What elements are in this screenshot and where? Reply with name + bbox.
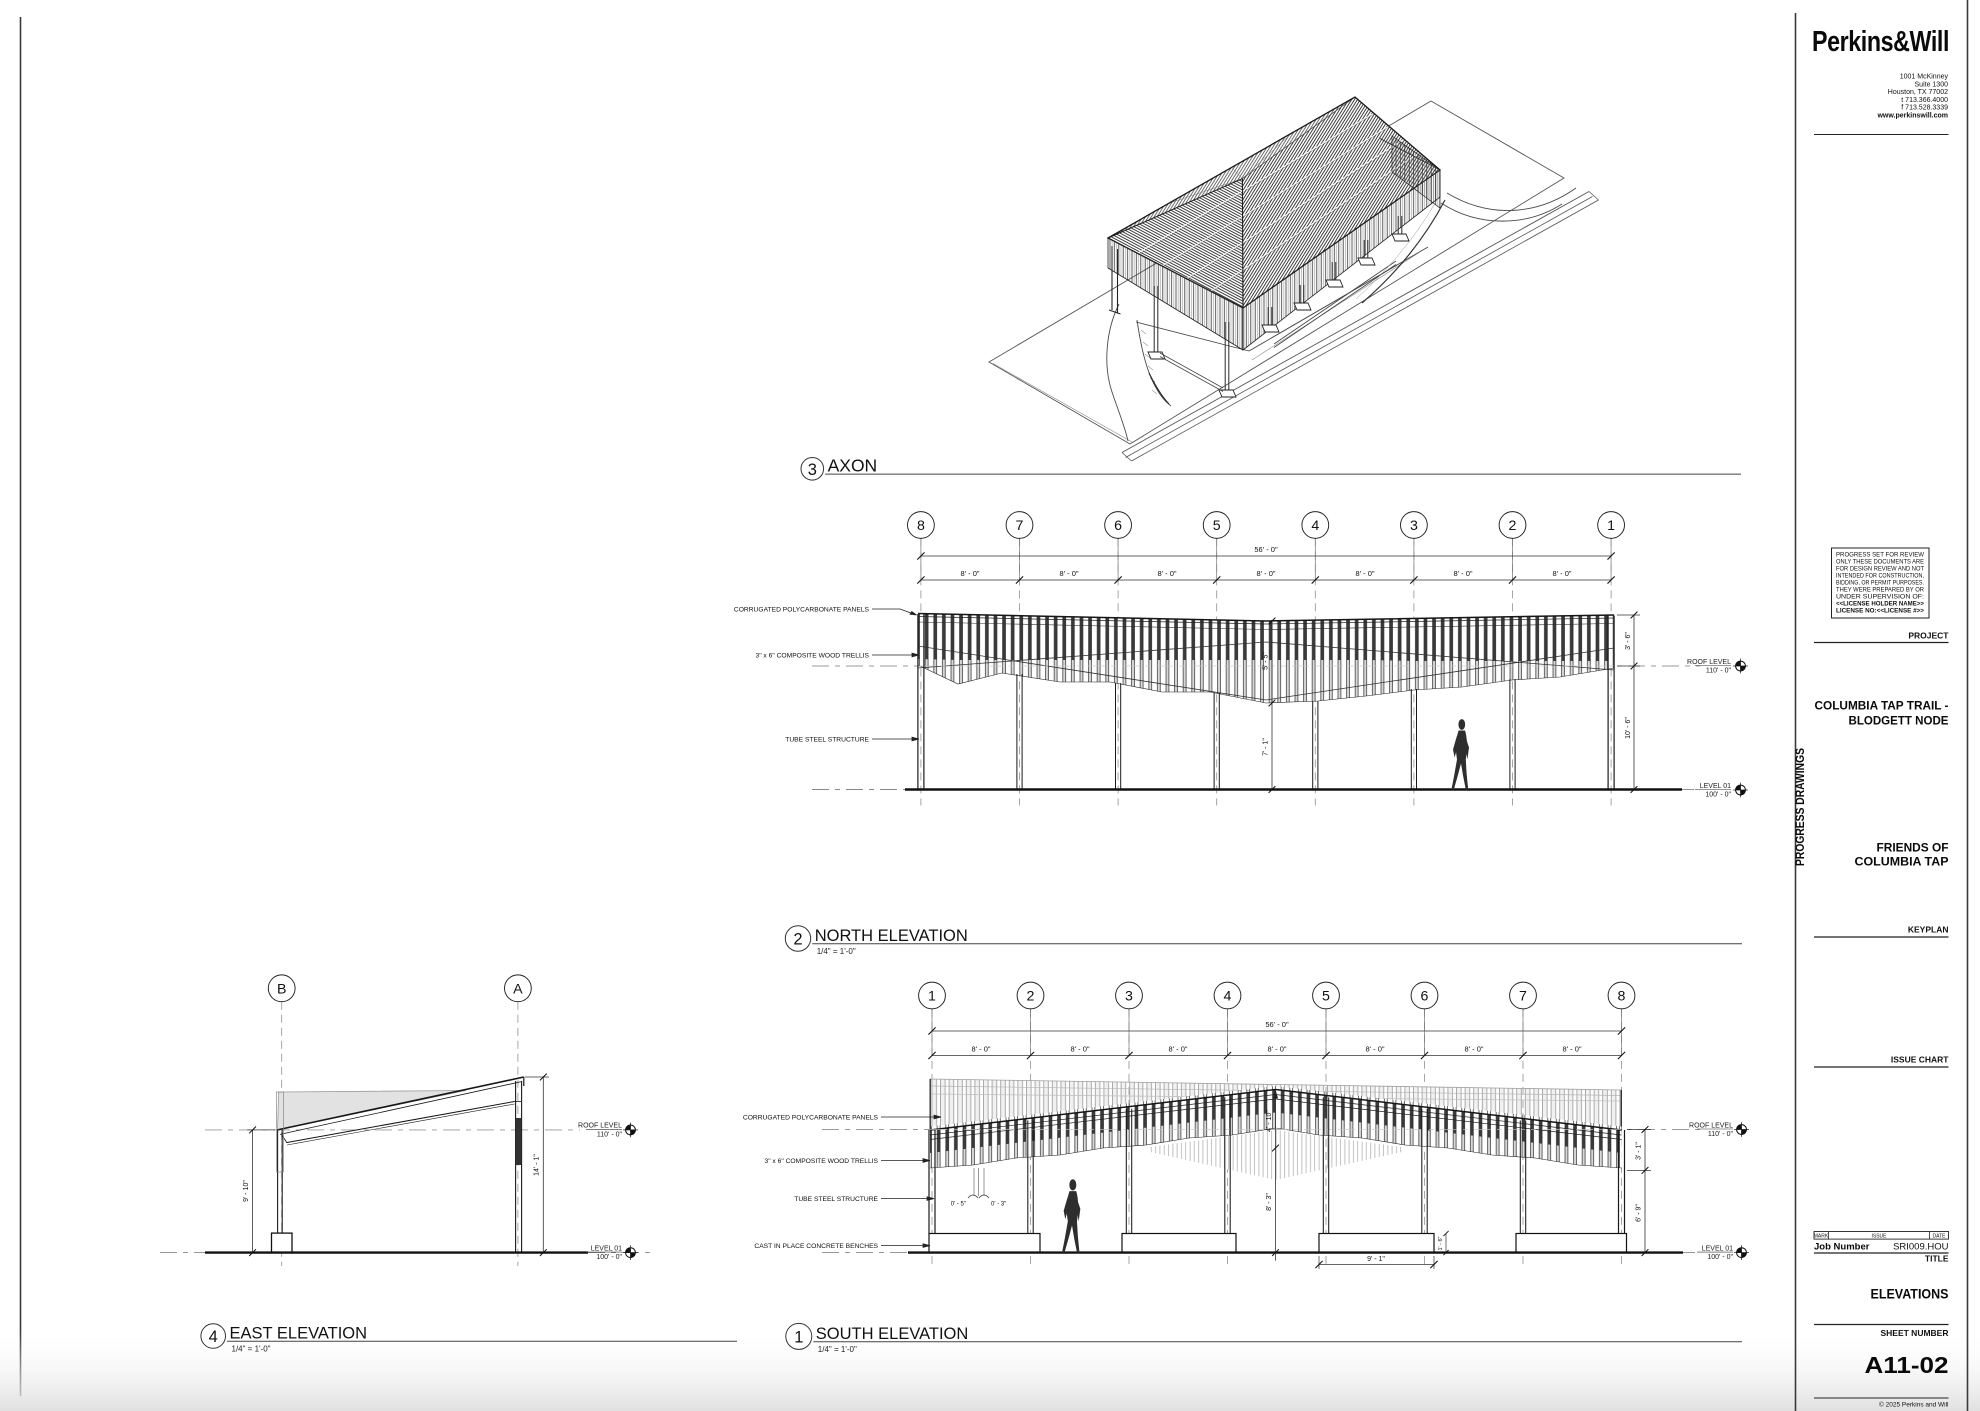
svg-text:www.perkinswill.com: www.perkinswill.com bbox=[1876, 113, 1948, 120]
svg-text:COLUMBIA TAP: COLUMBIA TAP bbox=[1855, 857, 1949, 869]
svg-text:8' - 0": 8' - 0" bbox=[1059, 569, 1078, 578]
svg-text:8' - 0": 8' - 0" bbox=[1453, 569, 1472, 578]
svg-text:Job Number: Job Number bbox=[1814, 1242, 1870, 1253]
svg-text:8' - 0": 8' - 0" bbox=[1552, 569, 1571, 578]
svg-text:7: 7 bbox=[1016, 518, 1024, 534]
svg-text:7' - 1": 7' - 1" bbox=[1263, 738, 1270, 756]
svg-text:KEYPLAN: KEYPLAN bbox=[1908, 925, 1949, 935]
svg-text:ISSUE: ISSUE bbox=[1871, 1233, 1887, 1239]
svg-text:10' - 6": 10' - 6" bbox=[1625, 717, 1632, 739]
svg-text:1/4" = 1'-0": 1/4" = 1'-0" bbox=[818, 1345, 857, 1354]
svg-text:LEVEL 01: LEVEL 01 bbox=[591, 1245, 622, 1252]
svg-text:2: 2 bbox=[1509, 518, 1517, 534]
svg-text:FOR DESIGN REVIEW AND NOT: FOR DESIGN REVIEW AND NOT bbox=[1836, 566, 1924, 573]
svg-text:6: 6 bbox=[1114, 518, 1122, 534]
svg-text:TUBE STEEL STRUCTURE: TUBE STEEL STRUCTURE bbox=[785, 737, 869, 744]
svg-text:EAST ELEVATION: EAST ELEVATION bbox=[230, 1325, 368, 1343]
svg-text:5: 5 bbox=[1213, 518, 1221, 534]
svg-text:A11-02: A11-02 bbox=[1865, 1352, 1949, 1378]
svg-text:© 2025 Perkins and Will: © 2025 Perkins and Will bbox=[1879, 1401, 1949, 1409]
svg-text:COLUMBIA TAP TRAIL -: COLUMBIA TAP TRAIL - bbox=[1815, 701, 1949, 713]
svg-text:100' - 0": 100' - 0" bbox=[1705, 792, 1731, 799]
svg-text:INTENDED FOR CONSTRUCTION,: INTENDED FOR CONSTRUCTION, bbox=[1836, 573, 1924, 580]
svg-text:1001 McKinney: 1001 McKinney bbox=[1900, 74, 1949, 81]
svg-text:110' - 0": 110' - 0" bbox=[1706, 668, 1732, 675]
svg-text:2: 2 bbox=[1027, 989, 1035, 1005]
svg-text:ROOF LEVEL: ROOF LEVEL bbox=[1687, 659, 1731, 666]
svg-text:110' - 0": 110' - 0" bbox=[1708, 1131, 1734, 1138]
svg-text:1' - 6": 1' - 6" bbox=[1438, 1236, 1444, 1250]
svg-text:B: B bbox=[277, 981, 286, 997]
svg-text:Perkins&Will: Perkins&Will bbox=[1812, 26, 1949, 58]
svg-text:3" x 6" COMPOSITE WOOD TRELLIS: 3" x 6" COMPOSITE WOOD TRELLIS bbox=[764, 1158, 878, 1165]
svg-text:PROGRESS SET FOR REVIEW: PROGRESS SET FOR REVIEW bbox=[1836, 552, 1924, 559]
svg-text:2: 2 bbox=[793, 931, 802, 949]
svg-text:8' - 0": 8' - 0" bbox=[1562, 1045, 1581, 1054]
svg-text:110' - 0": 110' - 0" bbox=[597, 1131, 623, 1138]
svg-text:CAST IN PLACE CONCRETE BENCHES: CAST IN PLACE CONCRETE BENCHES bbox=[754, 1243, 878, 1250]
svg-text:1: 1 bbox=[794, 1328, 803, 1346]
svg-text:UNDER SUPERVISION OF:: UNDER SUPERVISION OF: bbox=[1836, 594, 1924, 601]
svg-text:8' - 0": 8' - 0" bbox=[1070, 1045, 1089, 1054]
svg-text:LEVEL 01: LEVEL 01 bbox=[1700, 783, 1731, 790]
svg-text:5: 5 bbox=[1322, 989, 1330, 1005]
svg-text:4' - 10": 4' - 10" bbox=[1266, 1110, 1273, 1132]
svg-text:3' - 6": 3' - 6" bbox=[1625, 632, 1632, 650]
svg-text:8' - 0": 8' - 0" bbox=[1267, 1045, 1286, 1054]
svg-text:f 713.528.3339: f 713.528.3339 bbox=[1901, 105, 1948, 112]
svg-text:8' - 0": 8' - 0" bbox=[1355, 569, 1374, 578]
svg-text:6: 6 bbox=[1421, 989, 1429, 1005]
svg-text:8' - 0": 8' - 0" bbox=[1168, 1045, 1187, 1054]
svg-text:PROJECT: PROJECT bbox=[1908, 631, 1949, 641]
svg-text:3' - 1": 3' - 1" bbox=[1636, 1142, 1643, 1160]
svg-text:4: 4 bbox=[1311, 518, 1319, 534]
svg-text:7: 7 bbox=[1519, 989, 1527, 1005]
svg-text:SHEET NUMBER: SHEET NUMBER bbox=[1880, 1328, 1948, 1338]
svg-text:BLODGETT NODE: BLODGETT NODE bbox=[1849, 716, 1949, 728]
svg-text:LEVEL 01: LEVEL 01 bbox=[1702, 1245, 1733, 1252]
svg-text:CORRUGATED POLYCARBONATE PANEL: CORRUGATED POLYCARBONATE PANELS bbox=[743, 1115, 879, 1122]
svg-text:0' - 3": 0' - 3" bbox=[991, 1202, 1006, 1208]
svg-text:6' - 9": 6' - 9" bbox=[1636, 1204, 1643, 1222]
svg-text:ROOF LEVEL: ROOF LEVEL bbox=[1689, 1122, 1733, 1129]
svg-text:100' - 0": 100' - 0" bbox=[1707, 1254, 1733, 1261]
svg-text:8' - 0": 8' - 0" bbox=[1256, 569, 1275, 578]
svg-text:8' - 0": 8' - 0" bbox=[971, 1045, 990, 1054]
svg-text:ELEVATIONS: ELEVATIONS bbox=[1871, 1287, 1949, 1302]
svg-text:4: 4 bbox=[209, 1328, 218, 1346]
svg-text:1/4" = 1'-0": 1/4" = 1'-0" bbox=[232, 1345, 271, 1354]
svg-text:TUBE STEEL STRUCTURE: TUBE STEEL STRUCTURE bbox=[794, 1196, 878, 1203]
svg-text:THEY WERE PREPARED BY OR: THEY WERE PREPARED BY OR bbox=[1836, 587, 1924, 594]
svg-text:5' - 5": 5' - 5" bbox=[1263, 652, 1270, 670]
svg-text:100' - 0": 100' - 0" bbox=[596, 1254, 622, 1261]
svg-text:ISSUE CHART: ISSUE CHART bbox=[1891, 1055, 1949, 1065]
svg-text:ROOF LEVEL: ROOF LEVEL bbox=[578, 1123, 622, 1130]
svg-text:9' - 1": 9' - 1" bbox=[1367, 1256, 1385, 1263]
svg-text:NORTH ELEVATION: NORTH ELEVATION bbox=[815, 927, 968, 945]
svg-text:8' - 0": 8' - 0" bbox=[1365, 1045, 1384, 1054]
svg-text:LICENSE NO:<<LICENSE #>>: LICENSE NO:<<LICENSE #>> bbox=[1836, 608, 1924, 615]
svg-text:56' - 0": 56' - 0" bbox=[1265, 1020, 1289, 1029]
svg-text:t 713.366.4000: t 713.366.4000 bbox=[1901, 97, 1948, 104]
svg-text:3: 3 bbox=[1125, 989, 1133, 1005]
svg-text:8: 8 bbox=[1618, 989, 1626, 1005]
svg-text:8' - 0": 8' - 0" bbox=[960, 569, 979, 578]
svg-text:14' - 1": 14' - 1" bbox=[534, 1154, 541, 1176]
svg-text:FRIENDS OF: FRIENDS OF bbox=[1877, 843, 1949, 855]
svg-text:1: 1 bbox=[1607, 518, 1615, 534]
svg-text:3: 3 bbox=[1410, 518, 1418, 534]
svg-text:3" x 6" COMPOSITE WOOD TRELLIS: 3" x 6" COMPOSITE WOOD TRELLIS bbox=[755, 653, 869, 660]
svg-text:AXON: AXON bbox=[828, 455, 878, 475]
svg-text:ONLY THESE DOCUMENTS ARE: ONLY THESE DOCUMENTS ARE bbox=[1836, 559, 1924, 566]
svg-text:8' - 3": 8' - 3" bbox=[1266, 1193, 1273, 1211]
svg-text:56' - 0": 56' - 0" bbox=[1254, 545, 1278, 554]
svg-text:Houston, TX 77002: Houston, TX 77002 bbox=[1888, 89, 1948, 96]
svg-text:1/4" = 1'-0": 1/4" = 1'-0" bbox=[817, 947, 856, 956]
svg-text:1: 1 bbox=[928, 989, 936, 1005]
svg-text:9' - 10": 9' - 10" bbox=[243, 1180, 250, 1202]
svg-text:PROGRESS DRAWINGS: PROGRESS DRAWINGS bbox=[1795, 748, 1807, 866]
svg-text:TITLE: TITLE bbox=[1925, 1254, 1949, 1264]
svg-text:Suite 1300: Suite 1300 bbox=[1915, 81, 1949, 88]
svg-text:8' - 0": 8' - 0" bbox=[1157, 569, 1176, 578]
svg-text:SRI009.HOU: SRI009.HOU bbox=[1893, 1242, 1949, 1253]
svg-text:8' - 0": 8' - 0" bbox=[1464, 1045, 1483, 1054]
svg-text:3: 3 bbox=[808, 461, 817, 479]
svg-text:SOUTH ELEVATION: SOUTH ELEVATION bbox=[816, 1325, 969, 1343]
svg-text:A: A bbox=[513, 981, 523, 997]
svg-text:0' - 5": 0' - 5" bbox=[951, 1202, 966, 1208]
svg-text:CORRUGATED POLYCARBONATE PANEL: CORRUGATED POLYCARBONATE PANELS bbox=[734, 607, 870, 614]
svg-text:DATE: DATE bbox=[1933, 1233, 1947, 1239]
svg-text:8: 8 bbox=[917, 518, 925, 534]
svg-text:<<LICENSE HOLDER NAME>>: <<LICENSE HOLDER NAME>> bbox=[1836, 601, 1924, 608]
svg-text:BIDDING, OR PERMIT PURPOSES.: BIDDING, OR PERMIT PURPOSES. bbox=[1836, 580, 1924, 587]
svg-text:MARK: MARK bbox=[1814, 1233, 1829, 1239]
svg-text:4: 4 bbox=[1224, 989, 1232, 1005]
